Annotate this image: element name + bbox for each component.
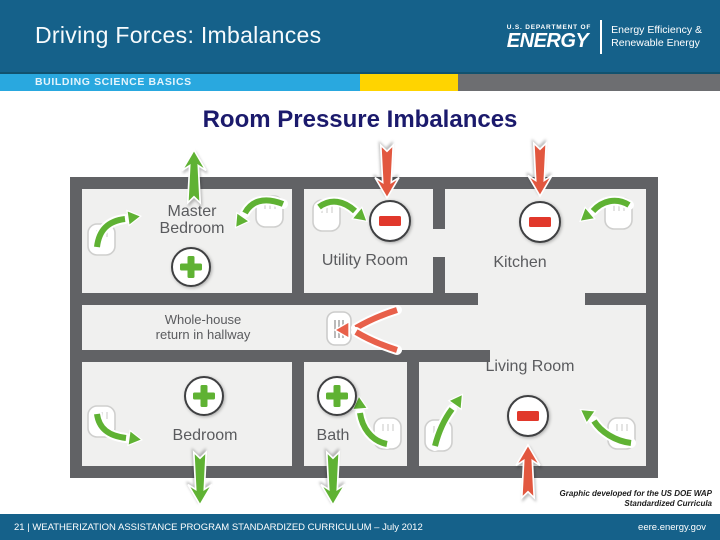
room-label-hallway-return: Whole-house return in hallway [123,312,283,342]
positive-pressure-icon [318,377,356,415]
down-arrow-icon [321,452,345,505]
eere-label: Energy Efficiency & Renewable Energy [611,24,702,50]
banner-yellow-segment [360,74,458,91]
room-label-living-room: Living Room [460,358,600,375]
doe-eere-logo: U.S. DEPARTMENT OF ENERGY Energy Efficie… [507,18,702,56]
curved-airflow-arrow-icon [435,390,469,446]
banner-label: BUILDING SCIENCE BASICS [35,76,192,88]
doe-energy-label: ENERGY [507,32,591,50]
door-icon [88,406,115,437]
graphic-credit: Graphic developed for the US DOE WAP Sta… [560,489,712,509]
slide: Driving Forces: Imbalances U.S. DEPARTME… [0,0,720,540]
positive-pressure-icon [185,377,223,415]
return-airflow-arrow-icon [335,310,397,350]
slide-title: Driving Forces: Imbalances [35,22,321,49]
banner-gray-segment [458,74,720,91]
doe-wordmark: U.S. DEPARTMENT OF ENERGY [507,24,591,50]
door-icon [425,420,452,451]
door-icon [88,224,115,255]
room-label-kitchen: Kitchen [450,254,590,271]
curved-airflow-arrow-icon [576,403,631,443]
logo-divider [600,20,602,54]
banner-strip: BUILDING SCIENCE BASICS [0,72,720,91]
curved-airflow-arrow-icon [575,201,629,227]
return-grille-icon [327,312,351,345]
negative-pressure-icon [520,202,560,242]
slide-header: Driving Forces: Imbalances U.S. DEPARTME… [0,0,720,72]
door-icon [256,196,283,227]
negative-pressure-icon [508,396,548,436]
down-arrow-icon [528,143,552,196]
door-icon [313,200,340,231]
negative-pressure-icon [370,201,410,241]
room-label-utility-room: Utility Room [295,252,435,269]
curved-airflow-arrow-icon [319,202,372,227]
up-arrow-icon [516,445,540,498]
down-arrow-icon [375,145,399,198]
diagram-title: Room Pressure Imbalances [0,106,720,134]
footer-program-text: 21 | WEATHERIZATION ASSISTANCE PROGRAM S… [14,522,423,533]
positive-pressure-icon [172,248,210,286]
room-label-master-bedroom: Master Bedroom [132,203,252,237]
footer-website: eere.energy.gov [638,522,706,533]
slide-footer: 21 | WEATHERIZATION ASSISTANCE PROGRAM S… [0,514,720,540]
door-icon [608,418,635,449]
up-arrow-icon [182,150,206,203]
room-label-bath: Bath [273,427,393,444]
room-label-bedroom: Bedroom [135,427,275,444]
door-icon [605,198,632,229]
down-arrow-icon [188,452,212,505]
